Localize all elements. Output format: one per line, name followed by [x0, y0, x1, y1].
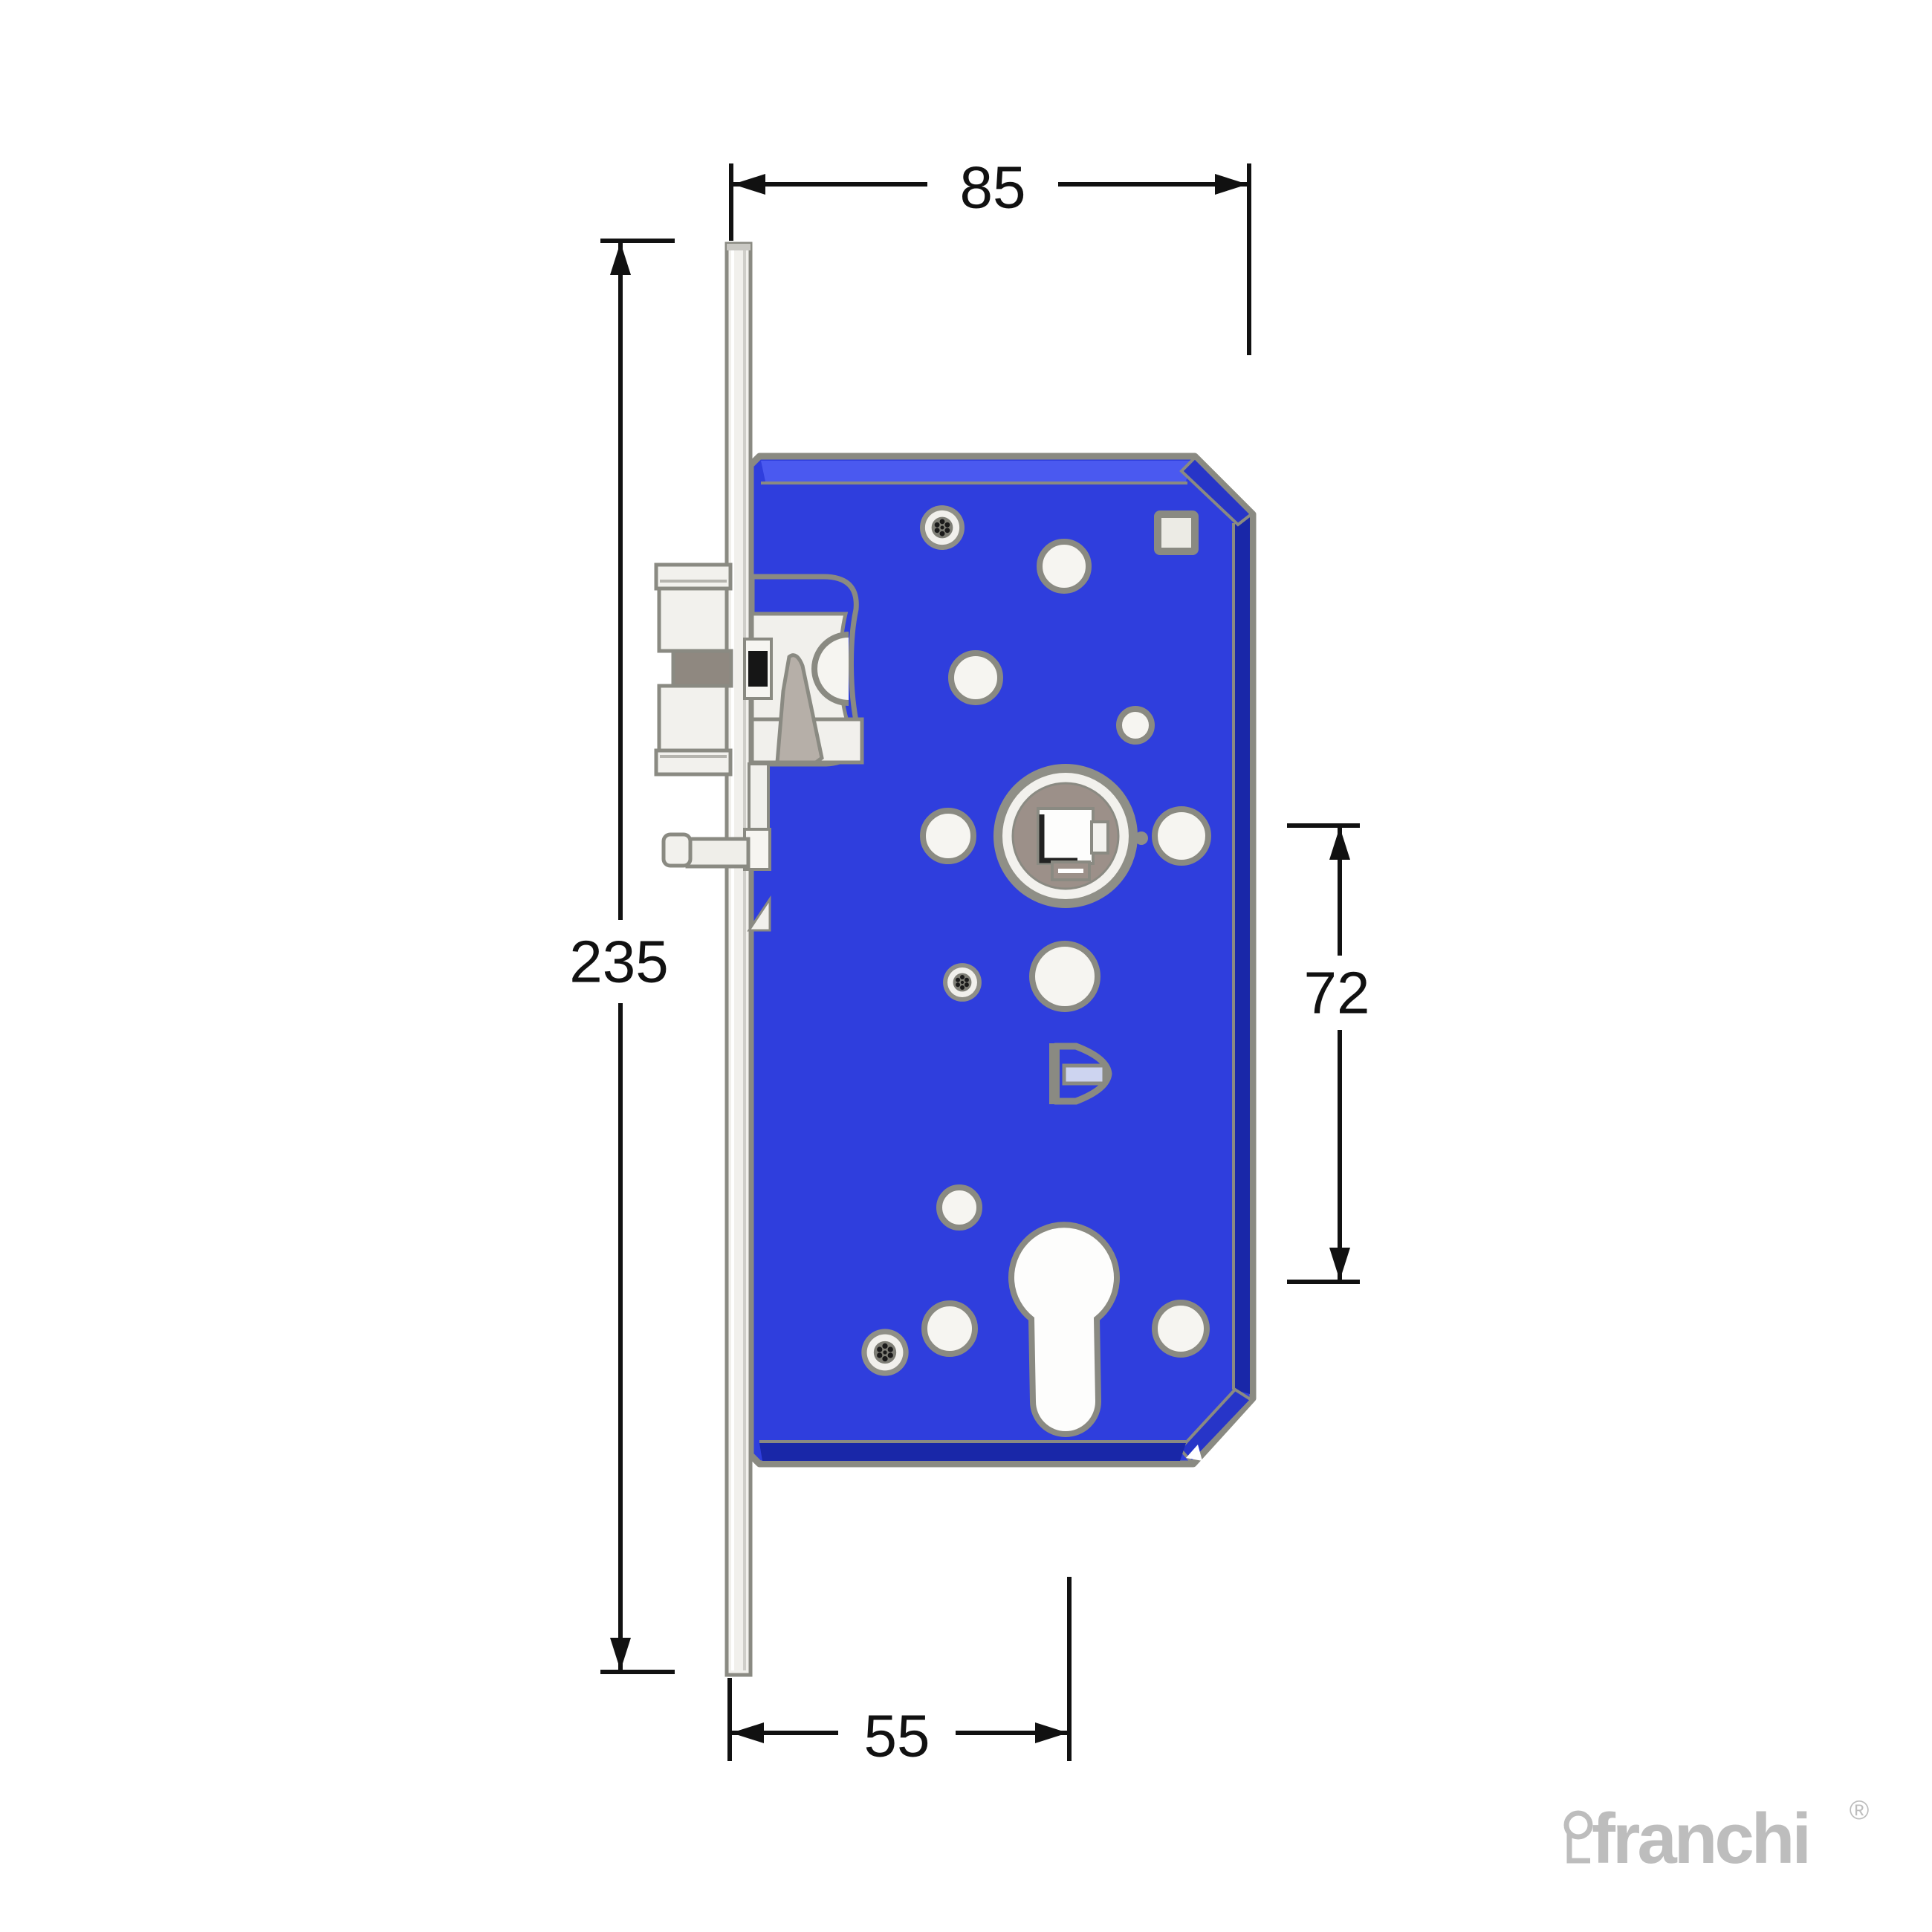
body-top-highlight [761, 461, 1192, 482]
dim55-arrow-left [731, 1722, 764, 1743]
body-bottom-shadow-band [759, 1443, 1186, 1461]
dim85-arrow-right [1215, 174, 1248, 195]
edge-strip-white [749, 764, 768, 832]
screw-middle-icon [943, 963, 982, 1002]
pin-head [664, 834, 690, 866]
follower-side-tab [1092, 822, 1108, 853]
body-right-shadow-band [1234, 517, 1250, 1394]
latch-slot-dark [748, 651, 768, 687]
dim235-value: 235 [569, 929, 668, 995]
dim235-arrow-bottom [610, 1638, 631, 1670]
pin-shaft [687, 839, 748, 866]
dimension-235: 235 [569, 241, 675, 1672]
hole-lower-small [939, 1187, 979, 1228]
screw-bottom-icon [861, 1329, 908, 1375]
dim72-value: 72 [1304, 960, 1370, 1026]
hole-bottom-left [924, 1303, 975, 1354]
dimension-55: 55 [730, 1577, 1069, 1769]
dim72-arrow-top [1329, 827, 1350, 860]
latch-bolt-bottom-flange [656, 751, 730, 774]
hole-follower-left [923, 811, 973, 861]
latch-bolt-top-flange [656, 565, 730, 589]
deadlocking-pin [664, 834, 748, 866]
dim85-arrow-left [733, 174, 765, 195]
hole-upper-small [1119, 709, 1152, 742]
registered-trademark: ® [1850, 1795, 1870, 1825]
hole-upper-left [951, 653, 1000, 702]
latch-bolt-lower-block [659, 686, 727, 751]
hole-mid-center [1032, 944, 1098, 1009]
technical-drawing-page: 85 235 72 5 [0, 0, 1932, 1932]
latch-bolt [656, 565, 731, 774]
faceplate-top-cap [727, 244, 751, 250]
dim72-arrow-bottom [1329, 1248, 1350, 1280]
dim235-arrow-top [610, 242, 631, 275]
faceplate [727, 244, 751, 1675]
dim55-value: 55 [864, 1703, 930, 1769]
clip-spring-plate [1064, 1066, 1104, 1083]
hole-square-top-right [1158, 514, 1195, 551]
brand-logo: franchi ® [1566, 1795, 1869, 1878]
dimension-85: 85 [731, 155, 1249, 356]
hole-bottom-right [1155, 1303, 1207, 1355]
brand-logo-text: franchi [1592, 1799, 1809, 1878]
latch-bolt-middle-bar [673, 651, 731, 686]
lock-technical-drawing: 85 235 72 5 [0, 0, 1932, 1932]
hole-follower-right [1155, 809, 1208, 863]
dim85-value: 85 [960, 155, 1026, 221]
latch-bolt-upper-block [659, 589, 727, 651]
dim55-arrow-right [1035, 1722, 1068, 1743]
follower-square-hole [1038, 808, 1093, 863]
hole-top-center [1040, 542, 1089, 591]
screw-top-icon [920, 505, 965, 550]
faceplate-strip [727, 244, 751, 1675]
dimension-72: 72 [1287, 826, 1369, 1282]
follower-ring-nub [1135, 832, 1148, 845]
